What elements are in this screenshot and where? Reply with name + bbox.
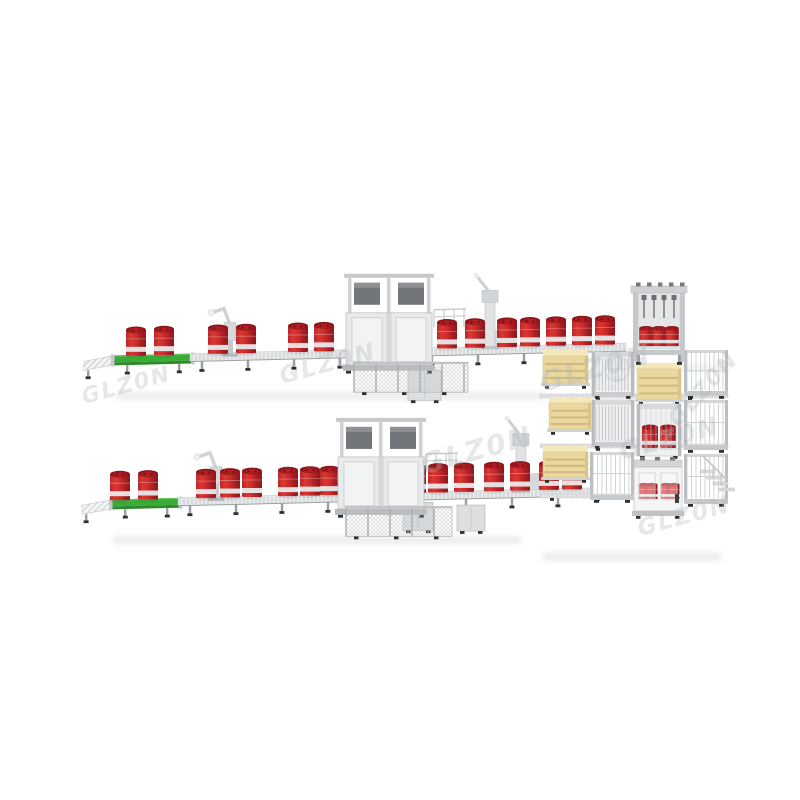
control-cabinet: [457, 505, 485, 534]
oil-drum: [109, 471, 131, 503]
oil-drum: [483, 462, 505, 494]
oil-drum: [299, 466, 321, 498]
oil-drum: [287, 323, 309, 355]
oil-drum: [496, 318, 518, 350]
safety-mesh-fence: [354, 362, 468, 395]
oil-drum: [571, 316, 593, 348]
oil-drum: [509, 461, 531, 493]
oil-drum: [125, 326, 147, 358]
oil-drum: [153, 326, 175, 358]
oil-drum: [219, 468, 241, 500]
drum-filling-line-illustration: GLZ0NGLZ0NGLZ0NGLZ0NGLZ0NGLZ0NGLZ0N: [0, 0, 800, 800]
pallet-stack: [541, 446, 590, 483]
pallet-stack: [547, 397, 593, 435]
oil-drum: [207, 324, 229, 356]
oil-drum: [436, 319, 458, 351]
oil-drum: [277, 467, 299, 499]
oil-drum: [464, 318, 486, 350]
oil-drum: [137, 470, 159, 502]
oil-drum: [195, 469, 217, 501]
oil-drum: [545, 316, 567, 348]
watermark-globe-logo: [605, 357, 629, 381]
safety-mesh-fence: [346, 506, 452, 539]
drum-filling-machine: [335, 418, 427, 518]
oil-drum: [241, 468, 263, 500]
product-render-page: GLZ0NGLZ0NGLZ0NGLZ0NGLZ0NGLZ0NGLZ0N: [0, 0, 800, 800]
oil-drum: [652, 326, 667, 348]
oil-drum: [235, 324, 257, 356]
oil-drum: [665, 326, 680, 348]
oil-drum: [519, 317, 541, 349]
oil-drum: [594, 315, 616, 347]
